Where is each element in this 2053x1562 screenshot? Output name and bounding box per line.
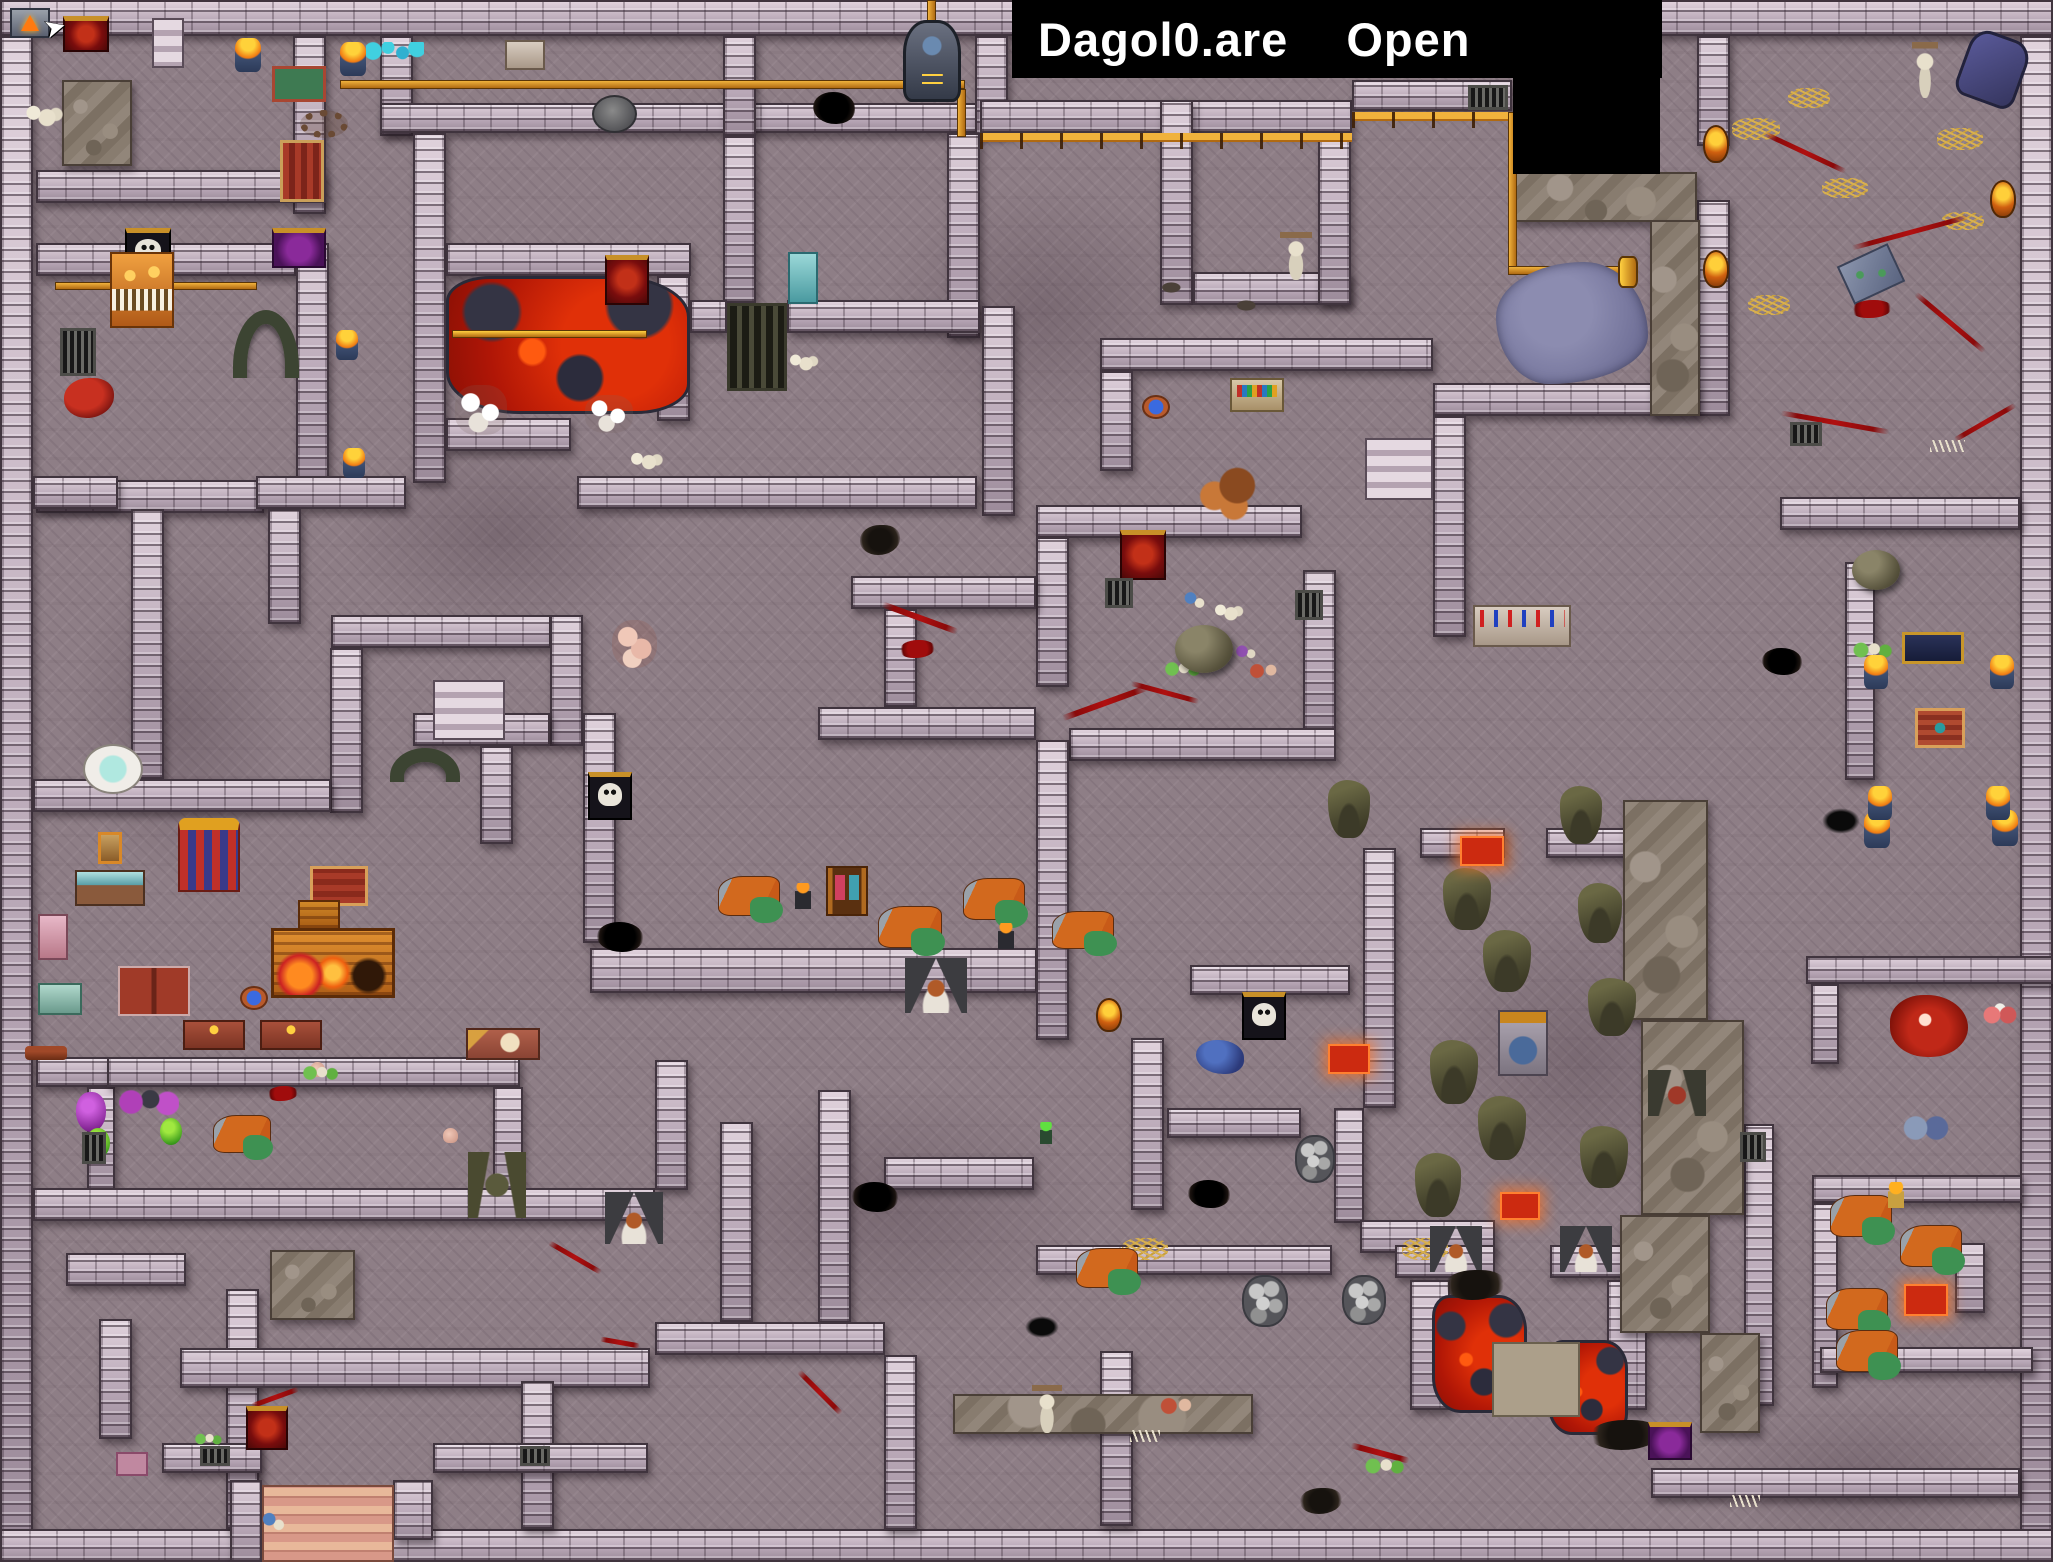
wall-segment [1131,1038,1164,1210]
skeleton-remains [1210,600,1245,625]
white-well [83,744,143,794]
gem-drops [366,42,424,60]
wall-segment [1036,537,1069,687]
rock-wall [1650,220,1700,416]
glowing-rug [1460,836,1504,866]
rock-wall [1700,1333,1760,1433]
hay-pile [1748,295,1790,315]
cot-bed [1826,1288,1888,1330]
skull-cluster-statue [1295,1135,1335,1183]
scorch-pit [813,92,855,124]
green-skeleton [193,1430,223,1448]
wall-segment [36,1057,114,1087]
wall-segment [66,1253,186,1286]
fire-brazier [340,42,366,76]
red-runner-carpet [280,140,324,202]
black-pit [597,922,643,952]
baker-table [466,1028,540,1060]
wall-segment [1433,416,1466,637]
skull-cluster-statue [1342,1275,1386,1325]
red-table-candles [260,1020,322,1050]
purple-gold-banner [1648,1422,1692,1460]
wall-segment [1190,965,1350,995]
wall-segment [655,1322,885,1355]
glass-table [75,870,145,906]
twisted-statue [1478,1096,1526,1160]
gold-pipe [172,282,257,290]
wall-segment [787,300,980,333]
wall-segment [1811,984,1839,1064]
red-demon-banner [1120,530,1166,580]
rock-wall [1513,172,1697,222]
wall-segment [1100,371,1133,471]
window-title-bar: Dagol0.are Open [1012,0,1662,78]
side-table [505,40,545,70]
green-candle [1040,1122,1052,1144]
purple-jug [76,1092,106,1132]
boulder [1852,550,1900,590]
rug-pair [118,966,190,1016]
skeleton-blue [1180,588,1210,613]
wall-segment [723,136,756,303]
red-demon-banner [605,255,649,305]
glowing-rug [1500,1192,1540,1220]
wall-segment [330,648,363,813]
wall-grate [1105,578,1133,608]
rat [1235,298,1260,313]
green-rug [272,66,326,102]
stair-block [152,18,184,68]
bone-scatter [1130,1430,1160,1442]
rock-wall [953,1394,1253,1434]
bookshelf [1230,378,1284,412]
wall-segment [1036,505,1302,538]
candle-shrine [1473,605,1571,647]
blue-altar-table [1902,632,1964,664]
black-cat [1025,1316,1059,1338]
twisted-statue [1443,868,1491,930]
red-table-candles [183,1020,245,1050]
rock-wall [62,80,132,166]
wall-segment [884,1355,917,1530]
wall-grate [200,1446,230,1466]
wall-segment [1780,497,2020,530]
hearth-chimney [298,900,340,930]
fire-brazier [336,330,358,360]
red-demon-banner [63,16,109,52]
wall-segment [99,1319,132,1439]
black-pit [1762,648,1802,675]
stair-block [433,680,505,740]
black-pit [1188,1180,1230,1208]
pink-rug [116,1452,148,1476]
ornate-rug [1915,708,1965,748]
gargoyle-statue [468,1152,526,1218]
wall-segment [818,707,1036,740]
portcullis-gate [727,303,787,391]
twisted-statue [1328,780,1370,838]
rock-wall [270,1250,355,1320]
red-skeleton [1245,662,1285,680]
eagle-statue [905,958,967,1013]
gold-pipe [1352,112,1512,128]
wall-segment [0,36,33,1562]
twisted-statue [1578,883,1622,943]
black-pit [852,1182,898,1212]
blue-basin [1142,395,1170,419]
hook-pole [25,1046,67,1060]
skull-mound [1492,1342,1580,1417]
fire-brazier [1868,786,1892,820]
wall-segment [655,1060,688,1190]
hanging-brazier [1096,998,1122,1032]
purple-gold-banner [272,228,326,268]
bloody-boulder [1175,625,1233,673]
fire-brazier [1990,655,2014,689]
candelabrum [795,883,811,909]
wall-picture [98,832,122,864]
kitchen-hearth [271,928,395,998]
wall-segment [131,509,164,779]
stone-vat [592,95,637,133]
wall-segment [33,476,118,509]
fire-brazier [1986,786,2010,820]
twisted-statue [1580,1126,1628,1188]
wall-segment [331,615,551,648]
wall-segment [851,576,1036,609]
wall-segment [1100,338,1433,371]
boiler-machine [903,20,961,102]
cot-bed [1830,1195,1892,1237]
teal-cabinet [38,983,82,1015]
wall-segment [446,243,691,276]
title-bar-notch [1513,78,1660,174]
wall-segment [583,713,616,943]
wall-segment [2020,36,2053,1562]
wall-segment [982,306,1015,516]
skull [443,1128,458,1143]
wall-segment [884,609,917,707]
wall-grate [60,328,96,376]
rock-wall [1623,800,1708,1020]
wall-grate [1295,590,1323,620]
bone-scatter [1730,1495,1760,1507]
wall-segment [884,1157,1034,1190]
canopy-bed [178,818,240,892]
gold-pipe [980,133,1352,149]
gold-railing [452,330,647,338]
blue-basin [240,986,268,1010]
wall-segment [1167,1108,1301,1138]
green-skeleton [300,1064,340,1082]
gold-valve-barrel [1618,256,1638,288]
cot-bed [718,876,780,916]
stone-circle [300,110,348,138]
red-demon-banner [246,1406,288,1450]
white-jars [585,395,633,433]
blood-fountain [1498,1010,1548,1076]
hanging-brazier [1703,250,1729,288]
skull-banner [588,772,632,820]
hanging-skeleton [1032,1385,1062,1433]
wall-segment [180,1348,650,1388]
flesh-altar [1890,995,1968,1057]
twisted-statue [1430,1040,1478,1104]
wall-segment [590,948,1037,993]
wall-segment [393,1480,433,1540]
wall-segment [1334,1108,1364,1223]
wall-segment [550,615,583,746]
wall-grate [520,1446,550,1466]
cot-bed [963,878,1025,920]
hanging-skeleton [1912,42,1938,98]
wall-torch [1888,1182,1904,1208]
throne-and-table [1195,455,1260,523]
gold-pipe [55,282,117,290]
wall-segment [577,476,977,509]
cot-bed [1052,911,1114,949]
pink-vases [1980,1000,2020,1030]
wall-segment [380,103,980,133]
wall-segment [256,476,406,509]
blue-jugs [1900,1112,1952,1144]
skull-cluster-statue [1242,1275,1288,1327]
stair-block [1365,438,1433,500]
wall-grate [82,1132,106,1164]
skeleton-remains [625,450,665,472]
eagle-statue [605,1192,663,1244]
rock-wall [1641,1020,1744,1215]
hay-pile [1788,88,1830,108]
twisted-statue [1560,786,1602,844]
wall-grate [1468,85,1508,110]
wall-segment [1100,1351,1133,1526]
floor-shadow [340,430,660,640]
wall-segment [1160,100,1193,305]
black-bat [1822,808,1860,834]
glowing-rug [1328,1044,1370,1074]
cot-bed [878,906,942,948]
twisted-statue [1483,930,1531,992]
wall-segment [690,300,727,333]
wall-grate [1740,1132,1766,1162]
wall-segment [296,243,329,483]
green-gourd [160,1118,182,1145]
winged-gargoyle [1648,1070,1706,1116]
cot-bed [1836,1330,1898,1372]
area-file-name: Dagol0.are [1038,12,1288,67]
wall-segment [1069,728,1336,761]
wall-segment [720,1122,753,1322]
white-pots [455,385,507,435]
wall-segment [33,779,331,812]
pipe-organ [110,252,174,328]
red-skeleton [1155,1396,1201,1416]
green-skeleton [1362,1456,1406,1476]
rock-wall [1620,1215,1710,1333]
bone-scatter [1930,440,1965,452]
wall-segment [1036,740,1069,1040]
fire-brazier [343,448,365,478]
pot-cluster [115,1088,179,1116]
hanging-brazier [1703,125,1729,163]
wall-grate [1790,422,1822,446]
pink-cabinet [38,914,68,960]
skeleton-blue [258,1508,290,1536]
wall-segment [818,1090,851,1323]
eagle-statue [1560,1226,1612,1272]
glowing-rug [1904,1284,1948,1316]
cot-bed [1076,1248,1138,1288]
twisted-statue [1415,1153,1461,1217]
eagle-statue [1430,1226,1482,1272]
cot-bed [1900,1225,1962,1267]
wall-segment [480,746,513,844]
twisted-statue [1588,978,1636,1036]
wall-segment [1651,1468,2020,1498]
flesh-bone-pile [612,620,657,668]
skull-banner [1242,992,1286,1040]
wall-segment [1697,200,1730,416]
wall-segment [1318,133,1351,305]
hay-pile [1937,128,1983,150]
cot-bed [213,1115,271,1153]
wall-segment [33,1188,655,1221]
area-map-viewer[interactable]: Dagol0.are Open ➤ [0,0,2053,1562]
candelabrum [998,923,1014,949]
area-file-status: Open [1346,12,1470,67]
fire-brazier [1864,655,1888,689]
fire-brazier [235,38,261,72]
wall-segment [413,133,446,483]
teal-bed [788,252,818,304]
hanging-skeleton [1280,232,1312,280]
gold-pipe [340,80,965,89]
rat [1160,280,1185,295]
wardrobe [826,866,868,916]
hanging-brazier [1990,180,2016,218]
skeleton-remains [785,350,820,375]
skeleton-sweeper [20,100,65,132]
wall-segment [268,509,301,624]
hay-pile [1822,178,1868,198]
wall-segment [1806,956,2053,984]
